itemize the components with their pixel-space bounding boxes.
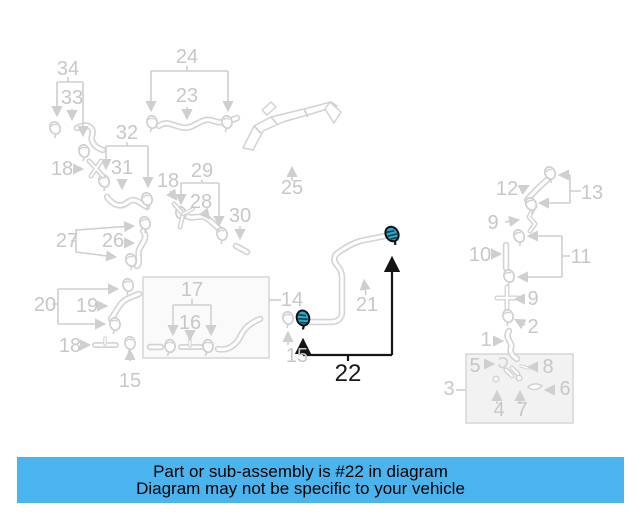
- callout-28: 28: [190, 191, 212, 213]
- callout-17: 17: [181, 279, 203, 301]
- callout-23: 23: [176, 85, 198, 107]
- callout-18a: 18: [51, 158, 73, 180]
- clamp-icon: [512, 228, 528, 247]
- banner-line1: Part or sub-assembly is #22 in diagram: [153, 463, 448, 480]
- parts-diagram: 34 33 24 23 32 31 18 18 29 28 30 25 27 2…: [0, 0, 640, 512]
- highlighted-clamp-icon: [383, 224, 403, 246]
- hose-12: [527, 180, 547, 200]
- ring-part-4: [493, 376, 499, 382]
- ring-part-7: [516, 375, 522, 381]
- banner-line2: Diagram may not be specific to your vehi…: [136, 480, 465, 497]
- callout-18b: 18: [157, 170, 179, 192]
- hose-21: [311, 235, 390, 322]
- callout-22-highlighted: 22: [335, 360, 362, 387]
- callout-19: 19: [76, 295, 98, 317]
- part-30: [236, 226, 247, 252]
- callout-29: 29: [191, 160, 213, 182]
- callout-26: 26: [102, 230, 124, 252]
- callout-8: 8: [542, 356, 553, 378]
- callout-14: 14: [281, 289, 303, 311]
- clamp-icon: [502, 309, 516, 327]
- callout-2: 2: [527, 316, 538, 338]
- callout-11: 11: [571, 246, 592, 268]
- callout-32: 32: [116, 122, 138, 144]
- hose-19: [111, 294, 139, 319]
- callout-6: 6: [559, 378, 570, 400]
- hose-26: [137, 231, 145, 266]
- cluster-14-15: [282, 311, 296, 345]
- clamp-icon: [146, 115, 159, 132]
- callout-16: 16: [179, 312, 201, 334]
- clamp-icon: [216, 227, 230, 245]
- parts-diagram-page: 34 33 24 23 32 31 18 18 29 28 30 25 27 2…: [0, 0, 640, 512]
- clamp-icon: [282, 311, 296, 329]
- cross-fitting-9: [497, 287, 518, 309]
- callout-24: 24: [176, 46, 198, 68]
- cluster-18-15-left: [82, 336, 137, 361]
- callout-9b: 9: [527, 288, 538, 310]
- clamp-icon: [48, 120, 63, 138]
- callout-13: 13: [581, 182, 603, 204]
- callout-25: 25: [281, 177, 303, 199]
- callout-34: 34: [57, 58, 79, 80]
- callout-9a: 9: [487, 212, 498, 234]
- highlighted-clamp-icon: [295, 309, 312, 330]
- callout-20: 20: [34, 294, 56, 316]
- callout-31: 31: [111, 157, 133, 179]
- callout-27: 27: [56, 230, 78, 252]
- callout-33: 33: [61, 87, 83, 109]
- callout-7: 7: [516, 399, 527, 421]
- t-fitting-18: [95, 338, 116, 345]
- clamp-icon: [109, 317, 122, 334]
- callout-5: 5: [469, 355, 480, 377]
- clamp-icon: [124, 336, 137, 353]
- clamp-icon: [503, 269, 517, 287]
- callout-18c: 18: [59, 335, 81, 357]
- callout-10: 10: [469, 244, 491, 266]
- callout-12: 12: [496, 178, 518, 200]
- diagram-banner: Part or sub-assembly is #22 in diagram D…: [17, 457, 624, 503]
- callout-15a: 15: [119, 370, 141, 392]
- callout-21: 21: [356, 294, 378, 316]
- callout-30: 30: [229, 205, 251, 227]
- callout-15b: 15: [286, 345, 308, 367]
- part-25-bracket: [243, 102, 341, 150]
- callout-4: 4: [493, 399, 504, 421]
- callout-3: 3: [443, 378, 454, 400]
- callout-1: 1: [480, 329, 491, 351]
- cross-fitting-18: [89, 161, 103, 176]
- hose-1: [507, 331, 517, 359]
